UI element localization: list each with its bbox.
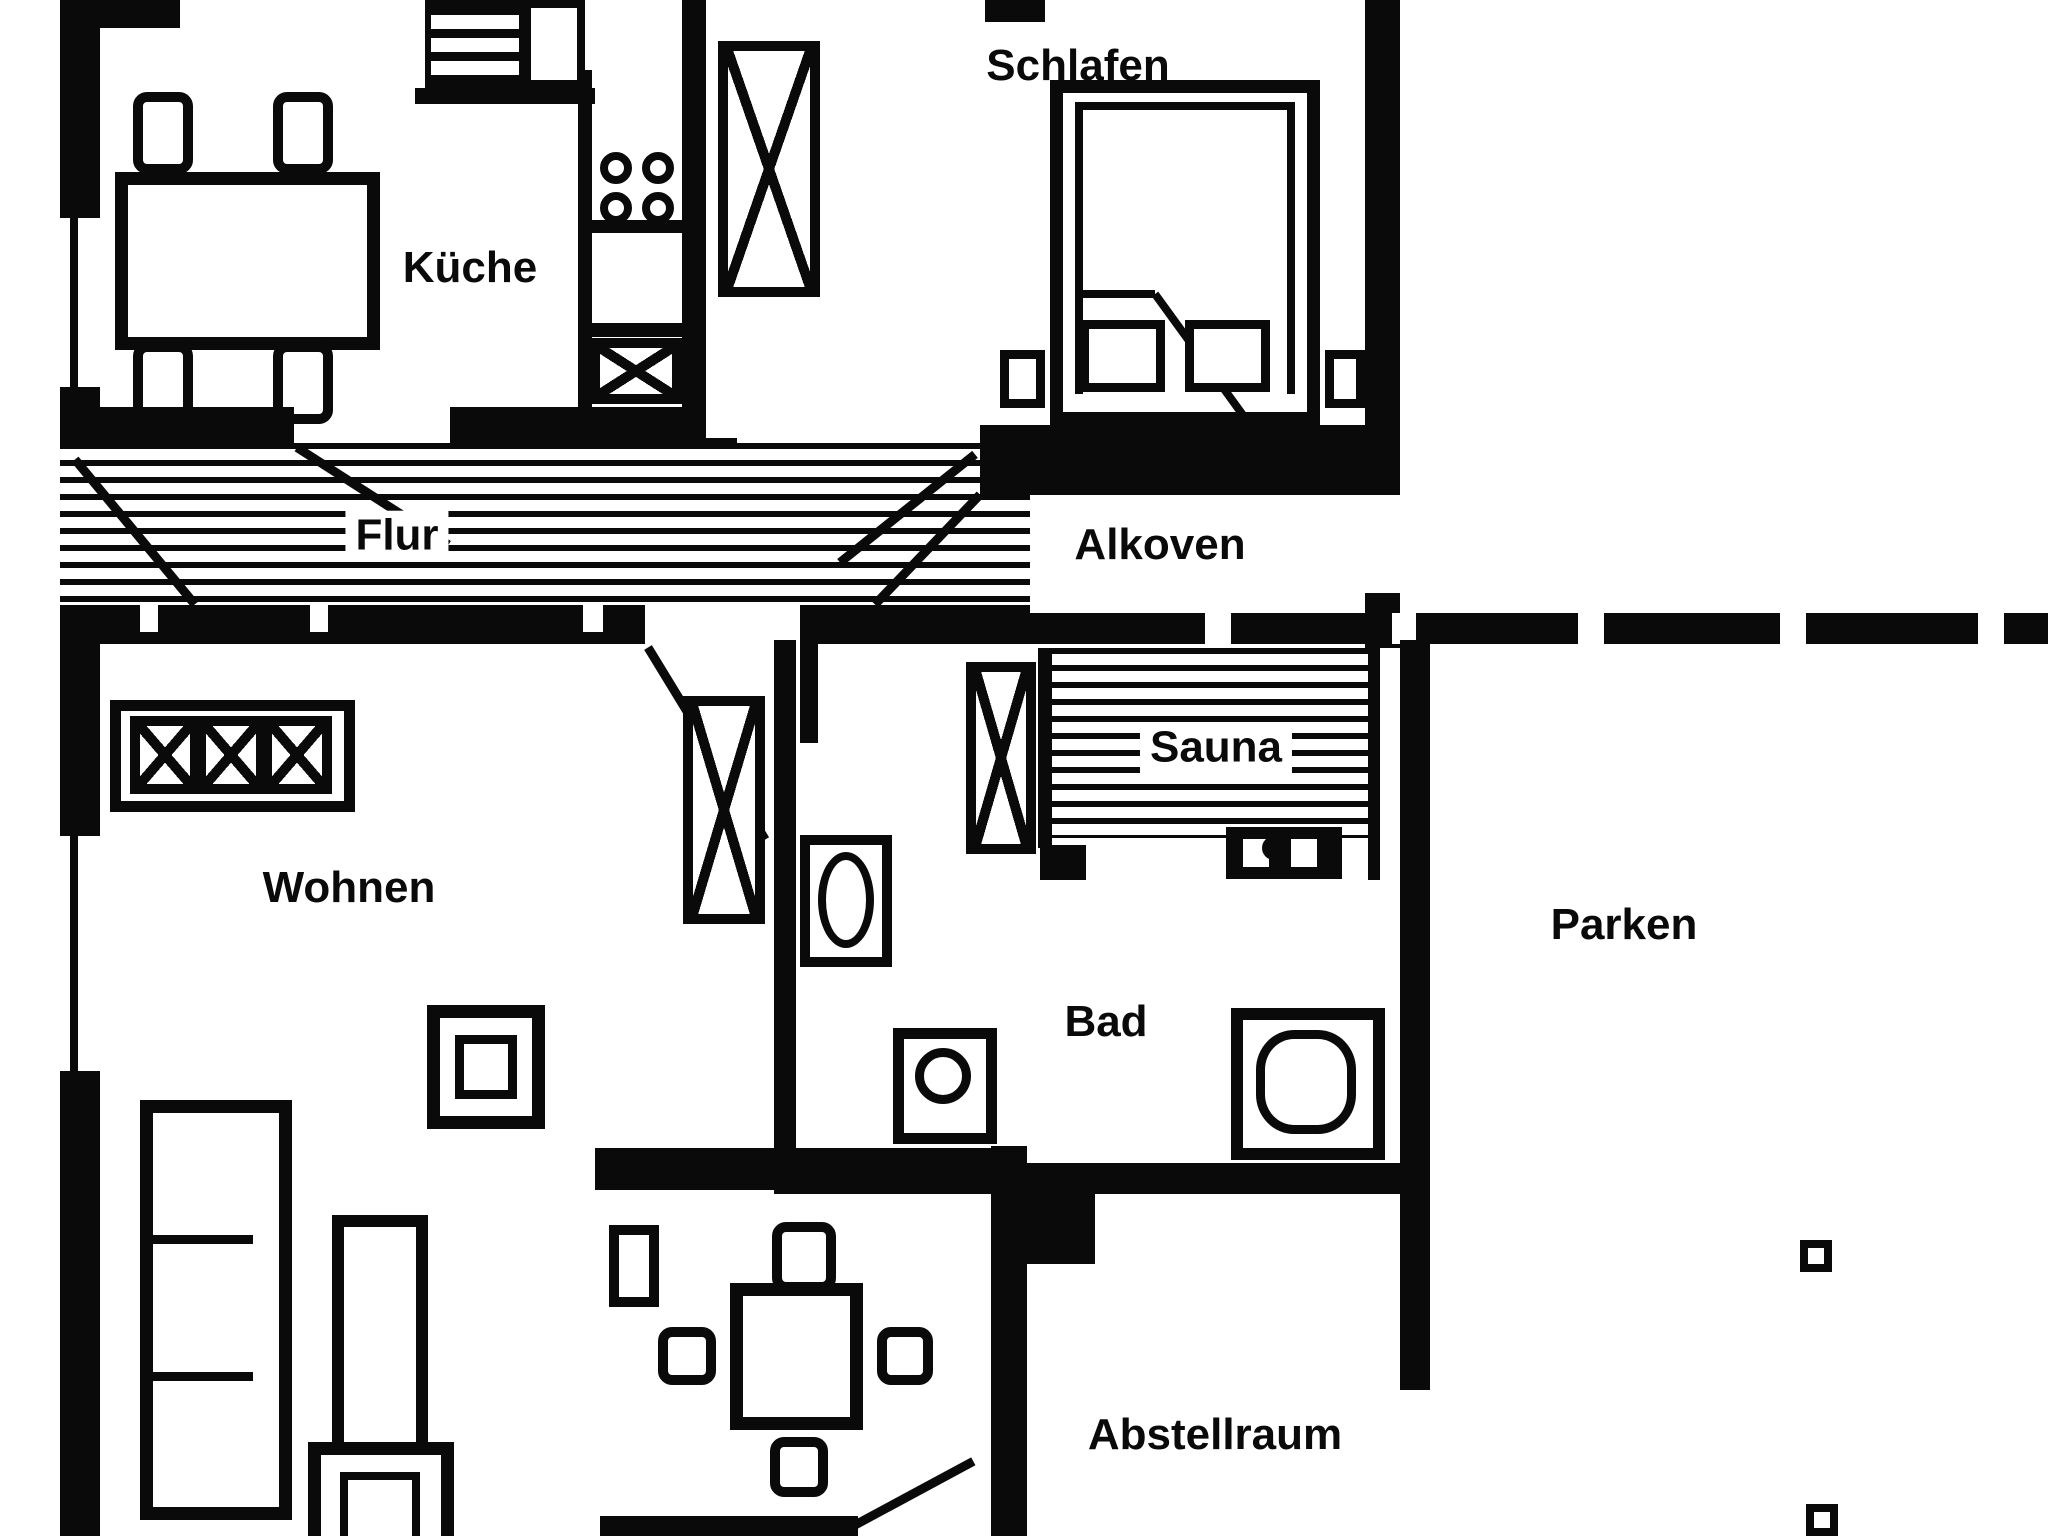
wall-kitchen-schlafen bbox=[682, 0, 706, 443]
shower-basin-icon bbox=[1256, 1030, 1356, 1134]
closet-x-icon bbox=[262, 716, 332, 794]
bad-bottom-wall bbox=[774, 1163, 1400, 1194]
wall-left-top bbox=[60, 0, 100, 218]
fence-post bbox=[1800, 1240, 1832, 1272]
wall-left-bottom bbox=[60, 1071, 100, 1536]
wall-top-stub bbox=[100, 0, 180, 28]
room-label-wohnen: Wohnen bbox=[263, 863, 436, 913]
sauna-heater-slot bbox=[1291, 839, 1317, 867]
wall-notch bbox=[140, 605, 158, 632]
sink-icon bbox=[590, 338, 682, 404]
tall-cabinet-icon bbox=[683, 696, 765, 924]
room-label-schlafen: Schlafen bbox=[986, 41, 1169, 91]
pillow bbox=[1080, 320, 1165, 392]
wall-wohnen-bad bbox=[774, 640, 796, 1162]
toilet-icon bbox=[818, 852, 874, 948]
nook-chair bbox=[770, 1437, 828, 1497]
stool bbox=[609, 1225, 659, 1307]
room-label-flur: Flur bbox=[345, 511, 448, 562]
wall-notch bbox=[310, 605, 328, 632]
nook-chair bbox=[772, 1222, 836, 1292]
flur-bottom-wall-b bbox=[800, 605, 1030, 644]
room-label-parken: Parken bbox=[1551, 900, 1698, 950]
bad-door-stub bbox=[800, 640, 818, 743]
wall-notch bbox=[583, 605, 603, 632]
sauna-west-wall bbox=[1038, 648, 1052, 848]
kitchen-chair bbox=[133, 92, 193, 174]
flur-top-wall-b bbox=[450, 407, 705, 443]
fence bbox=[1030, 613, 2048, 644]
room-label-sauna: Sauna bbox=[1140, 723, 1292, 774]
abstellraum-corner-block bbox=[995, 1194, 1095, 1264]
kitchen-dining-table bbox=[115, 172, 380, 350]
armchair-cushion bbox=[340, 1472, 420, 1536]
nightstand bbox=[1325, 350, 1365, 408]
bed-fold-line bbox=[1075, 290, 1155, 298]
stove-burner-icon bbox=[600, 152, 632, 184]
oven-icon bbox=[425, 0, 525, 90]
couch bbox=[140, 1100, 292, 1520]
counter-divider bbox=[592, 323, 682, 337]
floor-plan: Küche Flur Schlafen Alkoven Wohnen bbox=[0, 0, 2048, 1536]
oven-shelf-wall bbox=[415, 88, 595, 104]
nook-chair bbox=[877, 1327, 933, 1385]
counter-divider bbox=[592, 220, 682, 233]
closet-x-icon bbox=[130, 716, 200, 794]
couch-divider bbox=[153, 1372, 253, 1381]
stove-burner-icon bbox=[642, 152, 674, 184]
room-label-kueche: Küche bbox=[403, 243, 537, 293]
closet-x-icon bbox=[196, 716, 266, 794]
fence-post-gap bbox=[1205, 613, 1231, 644]
kitchen-chair bbox=[273, 92, 333, 174]
room-label-alkoven: Alkoven bbox=[1074, 520, 1245, 570]
nook-table bbox=[730, 1283, 863, 1430]
fence-post-gap bbox=[1780, 613, 1806, 644]
room-label-bad: Bad bbox=[1064, 997, 1147, 1047]
washing-machine-icon bbox=[915, 1048, 971, 1104]
fence-post-gap bbox=[1578, 613, 1604, 644]
fence-post bbox=[1806, 1504, 1838, 1536]
schlafen-top-stub bbox=[985, 0, 1045, 22]
parken-west-wall bbox=[1400, 640, 1430, 1390]
window-wohnen bbox=[70, 836, 78, 1071]
abstellraum-door-swing bbox=[841, 1457, 976, 1535]
couch-divider bbox=[153, 1235, 253, 1244]
tall-cabinet-icon bbox=[966, 662, 1036, 854]
sauna-stub-wall bbox=[1040, 845, 1086, 880]
nightstand bbox=[1000, 350, 1045, 408]
sauna-east-wall bbox=[1368, 648, 1380, 880]
bottom-wall bbox=[600, 1516, 858, 1536]
fence-post-gap bbox=[1978, 613, 2004, 644]
wall-right-bedroom bbox=[1365, 0, 1400, 495]
nook-chair bbox=[658, 1327, 716, 1385]
schlafen-bottom-wall bbox=[980, 425, 1370, 495]
coffee-table bbox=[332, 1215, 428, 1467]
kitchen-cabinet bbox=[523, 0, 585, 88]
flur-top-wall-a bbox=[60, 407, 294, 443]
window-kitchen bbox=[70, 218, 78, 387]
room-label-abstellraum: Abstellraum bbox=[1088, 1410, 1342, 1460]
pillow bbox=[1185, 320, 1270, 392]
sauna-heater-dot bbox=[1262, 836, 1286, 860]
armchair-cushion bbox=[455, 1035, 517, 1099]
wardrobe-icon bbox=[718, 41, 820, 297]
